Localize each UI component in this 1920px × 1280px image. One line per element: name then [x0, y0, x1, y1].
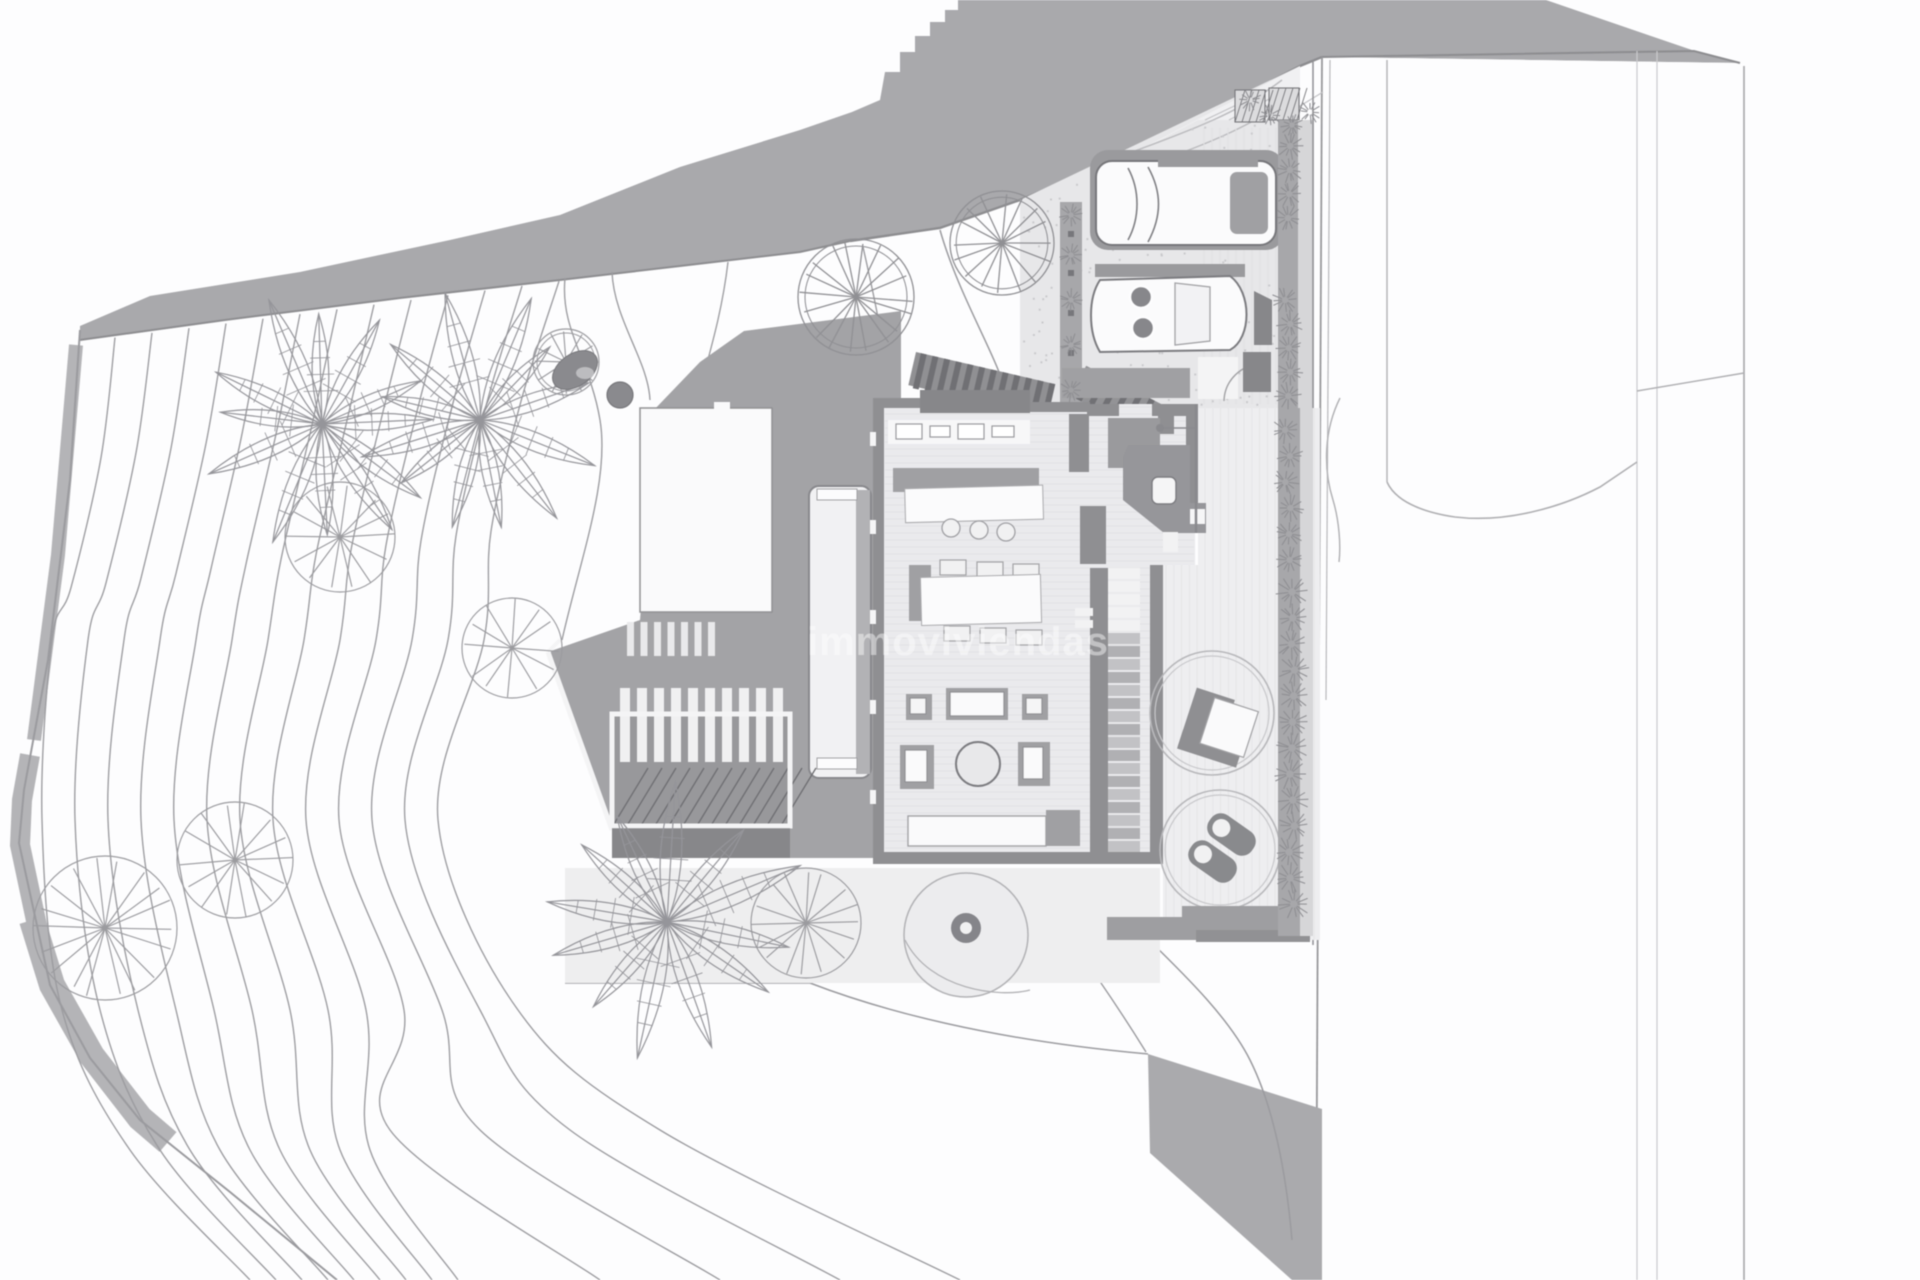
svg-text:immoviviendas: immoviviendas	[807, 620, 1109, 664]
